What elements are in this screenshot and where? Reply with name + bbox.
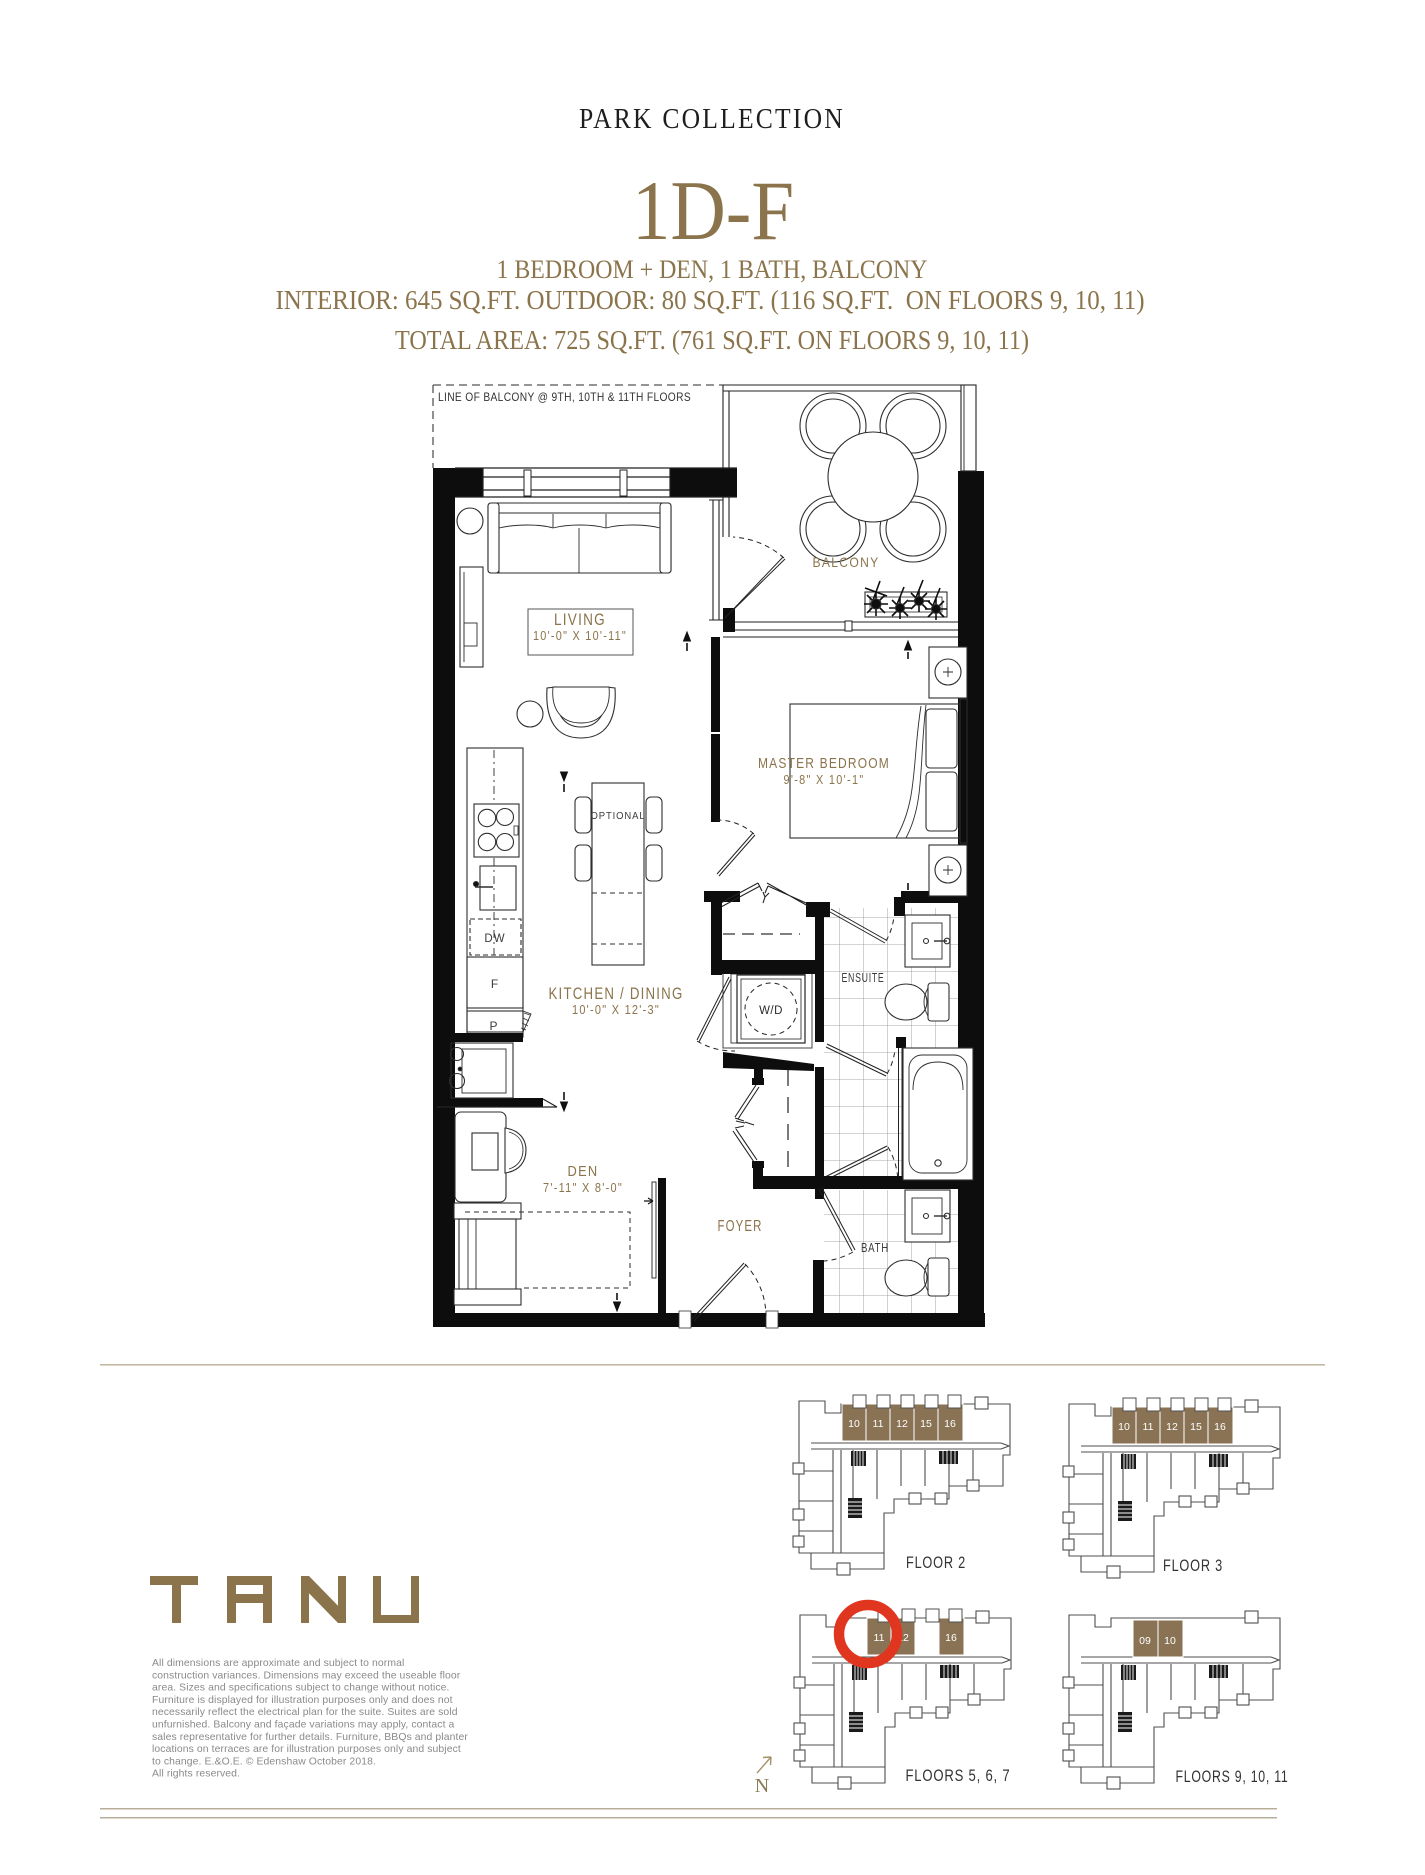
svg-text:9'-8" X 10'-1": 9'-8" X 10'-1" — [784, 773, 865, 787]
svg-text:W/D: W/D — [759, 1005, 783, 1017]
svg-text:to change. E.&O.E. © Edenshaw: to change. E.&O.E. © Edenshaw October 20… — [152, 1756, 376, 1767]
svg-text:LINE OF BALCONY @ 9TH, 10TH &: LINE OF BALCONY @ 9TH, 10TH & 11TH FLOOR… — [438, 390, 691, 404]
svg-text:1 BEDROOM + DEN, 1 BATH, BALCO: 1 BEDROOM + DEN, 1 BATH, BALCONY — [497, 255, 928, 284]
svg-text:P: P — [489, 1019, 498, 1033]
svg-text:16: 16 — [945, 1632, 957, 1644]
svg-text:F: F — [491, 977, 499, 991]
svg-text:INTERIOR: 645 SQ.FT. OUTDOOR:: INTERIOR: 645 SQ.FT. OUTDOOR: 80 SQ.FT. … — [276, 285, 1145, 315]
svg-text:TOTAL AREA: 725 SQ.FT. (761 SQ: TOTAL AREA: 725 SQ.FT. (761 SQ.FT. ON FL… — [395, 325, 1029, 355]
svg-text:16: 16 — [944, 1418, 956, 1430]
svg-text:09: 09 — [1139, 1635, 1151, 1647]
svg-text:MASTER BEDROOM: MASTER BEDROOM — [758, 755, 890, 772]
svg-text:10: 10 — [1118, 1421, 1130, 1433]
svg-text:DW: DW — [484, 933, 505, 945]
svg-text:10: 10 — [848, 1418, 860, 1430]
svg-text:FLOORS 9, 10, 11: FLOORS 9, 10, 11 — [1176, 1768, 1289, 1786]
svg-text:12: 12 — [1166, 1421, 1178, 1433]
svg-text:unfurnished. Balcony and façad: unfurnished. Balcony and façade variatio… — [152, 1720, 455, 1731]
svg-text:construction variances. Dimens: construction variances. Dimensions may e… — [152, 1670, 461, 1681]
svg-text:ENSUITE: ENSUITE — [842, 971, 885, 985]
svg-text:FOYER: FOYER — [718, 1218, 763, 1235]
svg-text:FLOOR 2: FLOOR 2 — [906, 1554, 966, 1572]
svg-text:10'-0" X 12'-3": 10'-0" X 12'-3" — [572, 1002, 660, 1017]
svg-text:1D-F: 1D-F — [632, 164, 794, 258]
svg-text:11: 11 — [873, 1418, 884, 1430]
svg-text:BATH: BATH — [861, 1241, 889, 1255]
svg-text:7'-11" X 8'-0": 7'-11" X 8'-0" — [543, 1180, 623, 1195]
svg-text:sales representative for furth: sales representative for further details… — [152, 1732, 468, 1743]
svg-text:15: 15 — [920, 1418, 932, 1430]
svg-text:FLOORS 5, 6, 7: FLOORS 5, 6, 7 — [906, 1767, 1011, 1785]
svg-text:OPTIONAL: OPTIONAL — [591, 810, 646, 822]
svg-text:N: N — [755, 1775, 769, 1797]
svg-text:locations on terraces are for: locations on terraces are for illustrati… — [152, 1744, 461, 1755]
svg-text:15: 15 — [1190, 1421, 1202, 1433]
svg-text:10'-0" X 10'-11": 10'-0" X 10'-11" — [533, 628, 627, 643]
svg-text:area. Sizes and specifications: area. Sizes and specifications subject t… — [152, 1683, 450, 1694]
svg-text:16: 16 — [1214, 1421, 1226, 1433]
svg-text:BALCONY: BALCONY — [813, 554, 880, 570]
svg-text:PARK COLLECTION: PARK COLLECTION — [579, 103, 845, 135]
svg-text:FLOOR 3: FLOOR 3 — [1163, 1557, 1223, 1575]
svg-text:Furniture is displayed for ill: Furniture is displayed for illustration … — [152, 1695, 453, 1706]
svg-text:All rights reserved.: All rights reserved. — [152, 1769, 240, 1780]
svg-text:12: 12 — [896, 1418, 908, 1430]
svg-text:11: 11 — [874, 1632, 885, 1644]
svg-text:All dimensions are approximate: All dimensions are approximate and subje… — [152, 1658, 404, 1669]
svg-text:11: 11 — [1143, 1421, 1154, 1433]
svg-text:necessarily reflect the electr: necessarily reflect the electrical plan … — [152, 1707, 458, 1718]
svg-text:10: 10 — [1164, 1635, 1176, 1647]
svg-text:LIVING: LIVING — [554, 611, 606, 629]
svg-text:KITCHEN / DINING: KITCHEN / DINING — [549, 985, 684, 1003]
svg-text:DEN: DEN — [568, 1163, 599, 1180]
